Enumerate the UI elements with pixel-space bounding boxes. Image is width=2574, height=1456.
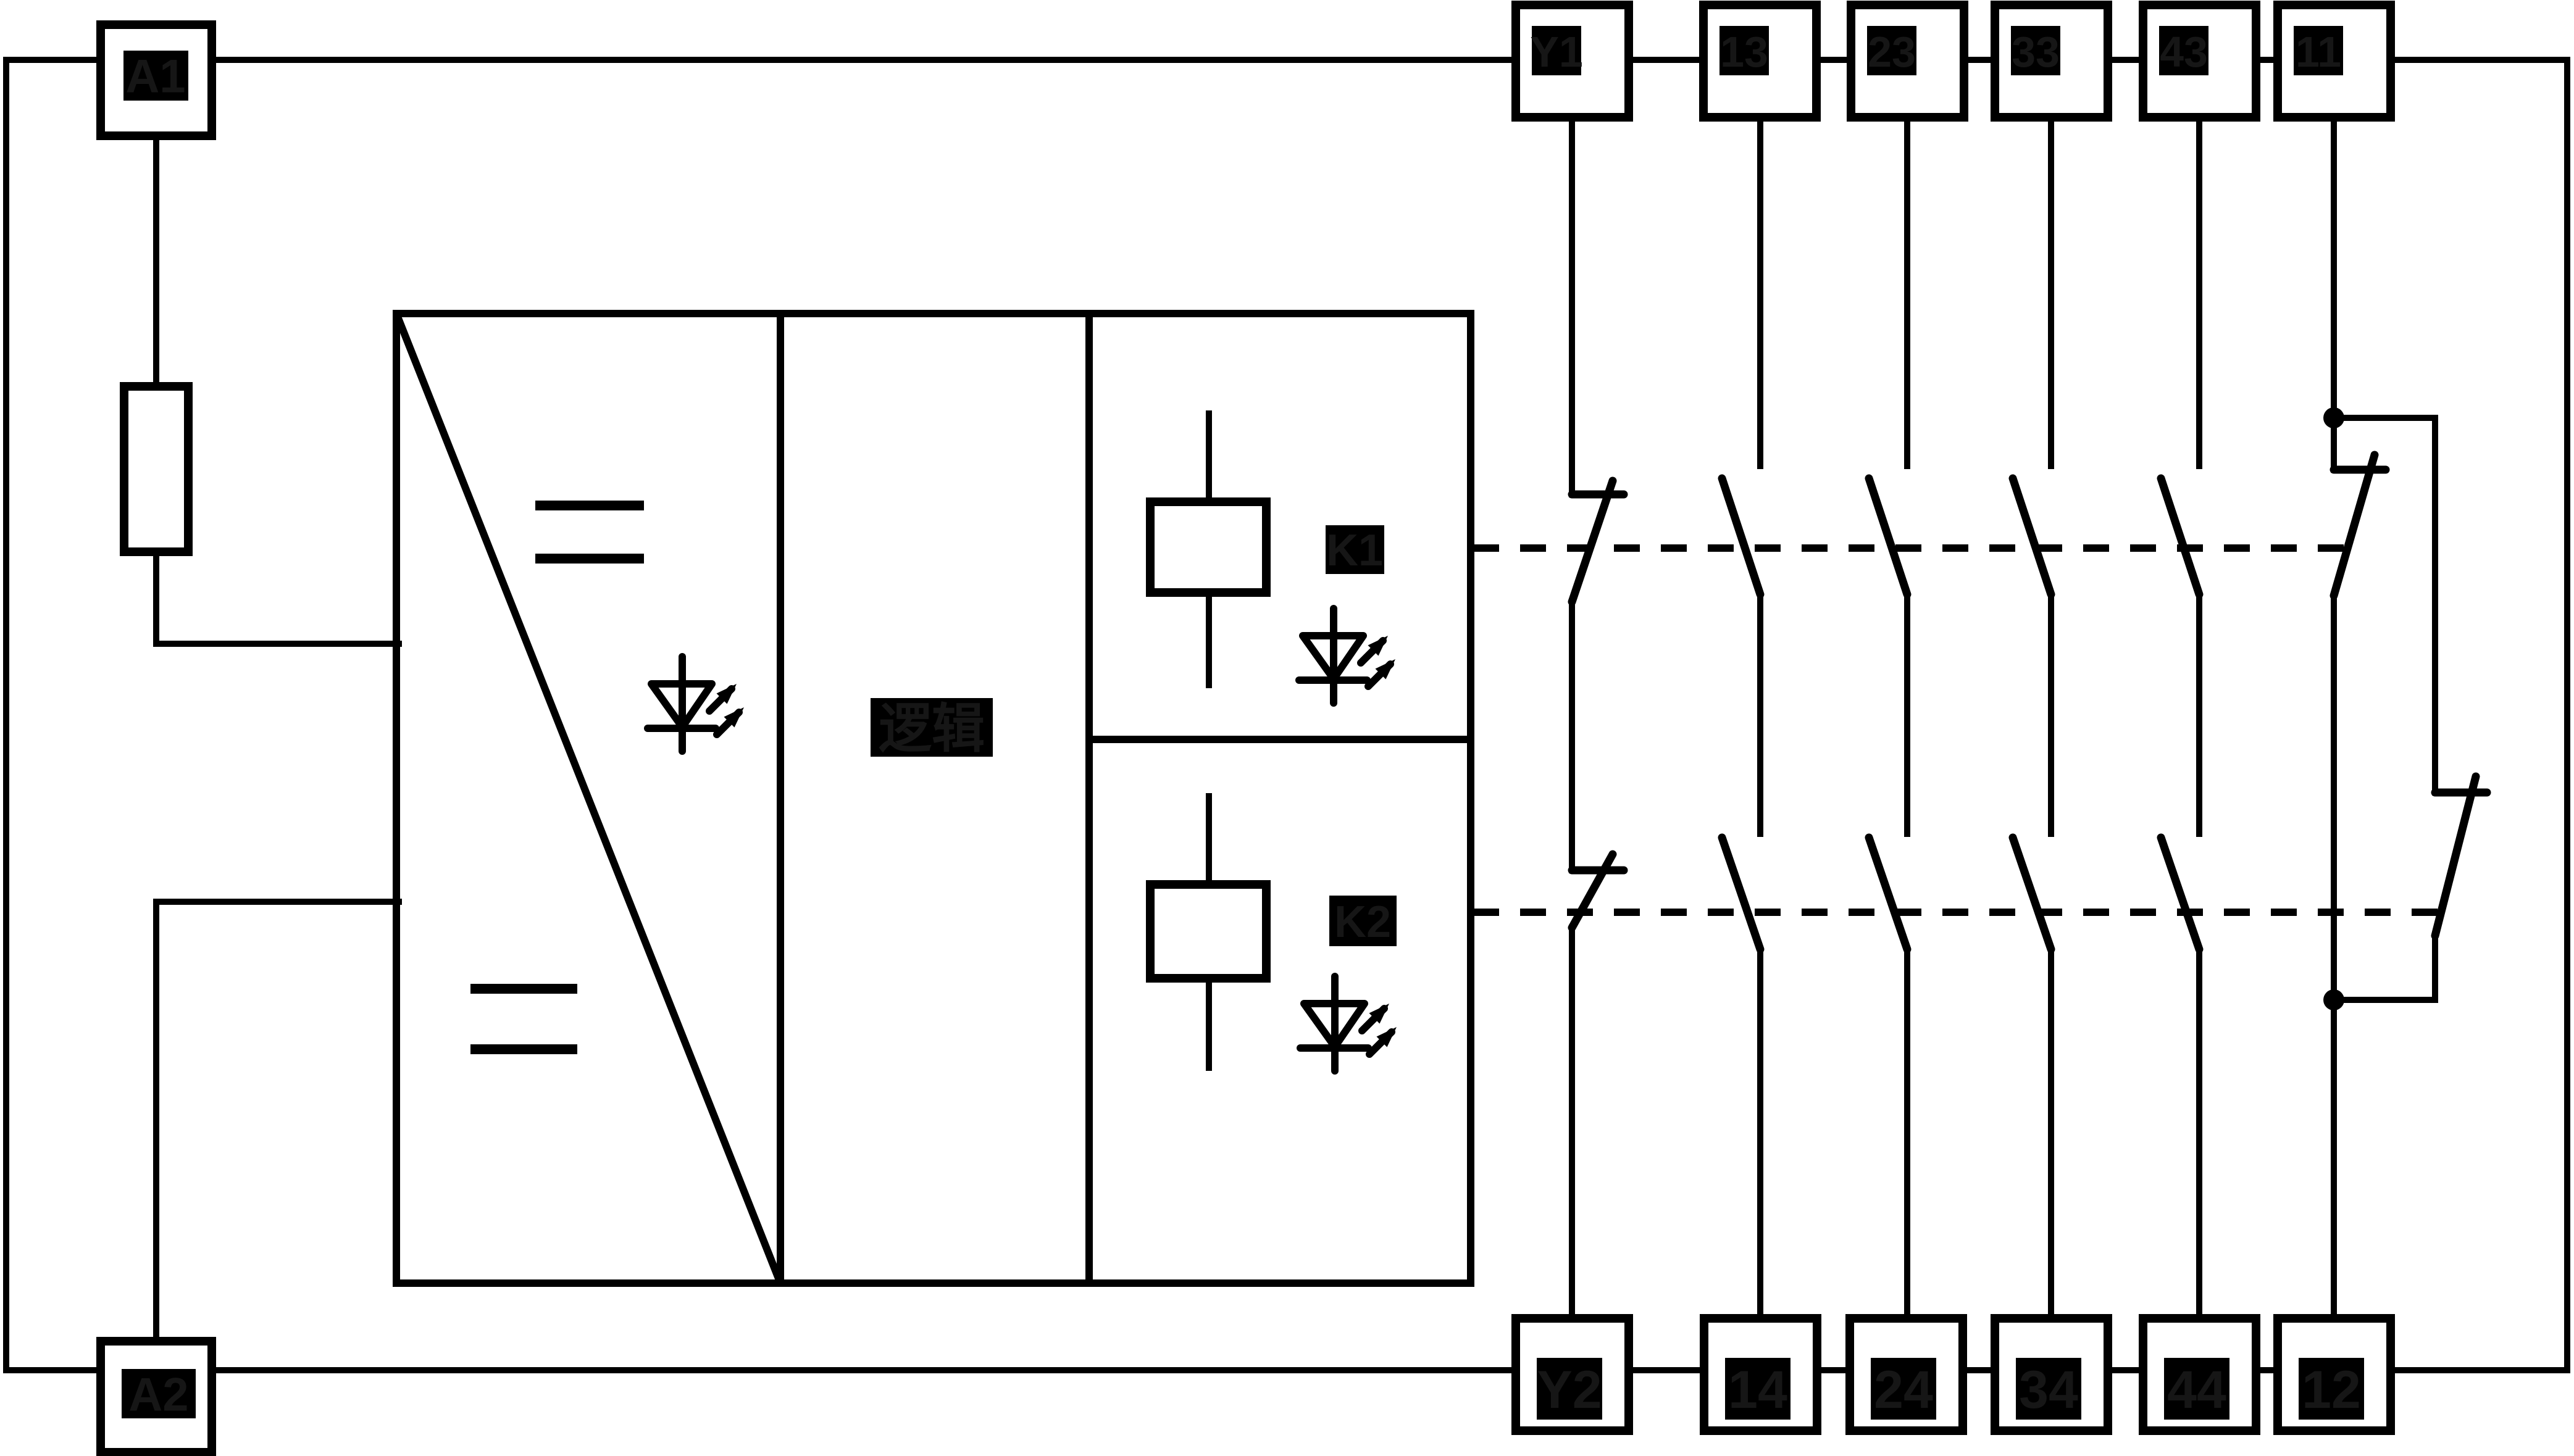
no-contact-blade — [2013, 478, 2051, 594]
nc-contact-blade — [1572, 854, 1613, 928]
led-indicator-k2 — [1300, 976, 1397, 1071]
no-contact-blade — [2013, 838, 2051, 949]
terminal-label: 11 — [2296, 28, 2341, 76]
unit-outline — [396, 314, 1471, 1283]
nc-contact-blade — [2435, 776, 2476, 936]
dc-symbol-bottom — [470, 989, 577, 1049]
no-contact-blade — [1869, 478, 1907, 594]
no-contact-blade — [1869, 838, 1907, 949]
supply-branch-a1 — [124, 136, 399, 644]
terminal-y2: Y2 — [1516, 1318, 1629, 1431]
terminal-a1: A1 — [101, 25, 212, 136]
terminal-34: 34 — [1995, 1318, 2108, 1431]
led-indicator-power — [648, 657, 744, 751]
nc-contact-blade — [2334, 455, 2375, 596]
terminal-label: 13 — [1720, 28, 1768, 76]
power-supply-diagonal — [396, 314, 780, 1283]
no-contact-blade — [2161, 838, 2199, 949]
contact-column-13-14 — [1722, 117, 1760, 1318]
terminal-23: 23 — [1851, 5, 1964, 117]
terminal-33: 33 — [1995, 5, 2108, 117]
contact-column-y1-y2 — [1572, 117, 1624, 1318]
terminal-43: 43 — [2143, 5, 2256, 117]
logic-block: 逻辑 — [871, 698, 993, 759]
contact-column-11-12 — [2323, 117, 2487, 1318]
no-contact-blade — [1722, 478, 1760, 594]
terminal-label: 44 — [2167, 1360, 2226, 1420]
main-unit-box — [396, 314, 1471, 1283]
outer-frame — [6, 60, 2567, 1370]
nc-contact-blade — [1572, 481, 1613, 602]
relay-k1-label: K1 — [1326, 526, 1383, 575]
relay-k2: K2 — [1150, 796, 1397, 1071]
dc-symbol-top — [535, 505, 644, 559]
terminal-label: 34 — [2019, 1360, 2078, 1420]
led-indicator-k1 — [1299, 609, 1395, 703]
relay-coil-icon — [1150, 502, 1266, 593]
terminal-11: 11 — [2278, 5, 2391, 117]
terminal-label: 43 — [2160, 28, 2208, 76]
terminal-label: Y1 — [1530, 28, 1583, 76]
terminal-label: 23 — [1868, 28, 1916, 76]
terminal-label: 14 — [1728, 1360, 1787, 1420]
terminal-44: 44 — [2143, 1318, 2256, 1431]
terminal-label: A1 — [125, 51, 185, 103]
terminal-y1: Y1 — [1516, 5, 1629, 117]
terminal-label: A2 — [128, 1369, 188, 1421]
terminal-12: 12 — [2278, 1318, 2391, 1431]
no-contact-blade — [1722, 838, 1760, 949]
schematic-page: 逻辑 K1 K2 — [0, 0, 2574, 1456]
terminal-label: 33 — [2012, 28, 2060, 76]
relay-k2-label: K2 — [1334, 897, 1391, 947]
supply-branch-a2 — [156, 902, 399, 1341]
terminal-label: 12 — [2302, 1360, 2361, 1420]
no-contact-blade — [2161, 478, 2199, 594]
terminal-13: 13 — [1703, 5, 1816, 117]
circuit-diagram: 逻辑 K1 K2 — [0, 0, 2574, 1456]
terminal-label: 24 — [1874, 1360, 1933, 1420]
terminal-14: 14 — [1704, 1318, 1817, 1431]
contact-column-43-44 — [2161, 117, 2199, 1318]
relay-k1: K1 — [1150, 414, 1395, 703]
terminal-label: Y2 — [1537, 1360, 1602, 1420]
contact-column-23-24 — [1869, 117, 1907, 1318]
relay-coil-icon — [1150, 884, 1266, 978]
contact-column-33-34 — [2013, 117, 2051, 1318]
terminal-24: 24 — [1850, 1318, 1963, 1431]
fuse-icon — [124, 386, 188, 552]
terminal-a2: A2 — [101, 1341, 212, 1452]
logic-label: 逻辑 — [879, 699, 985, 759]
